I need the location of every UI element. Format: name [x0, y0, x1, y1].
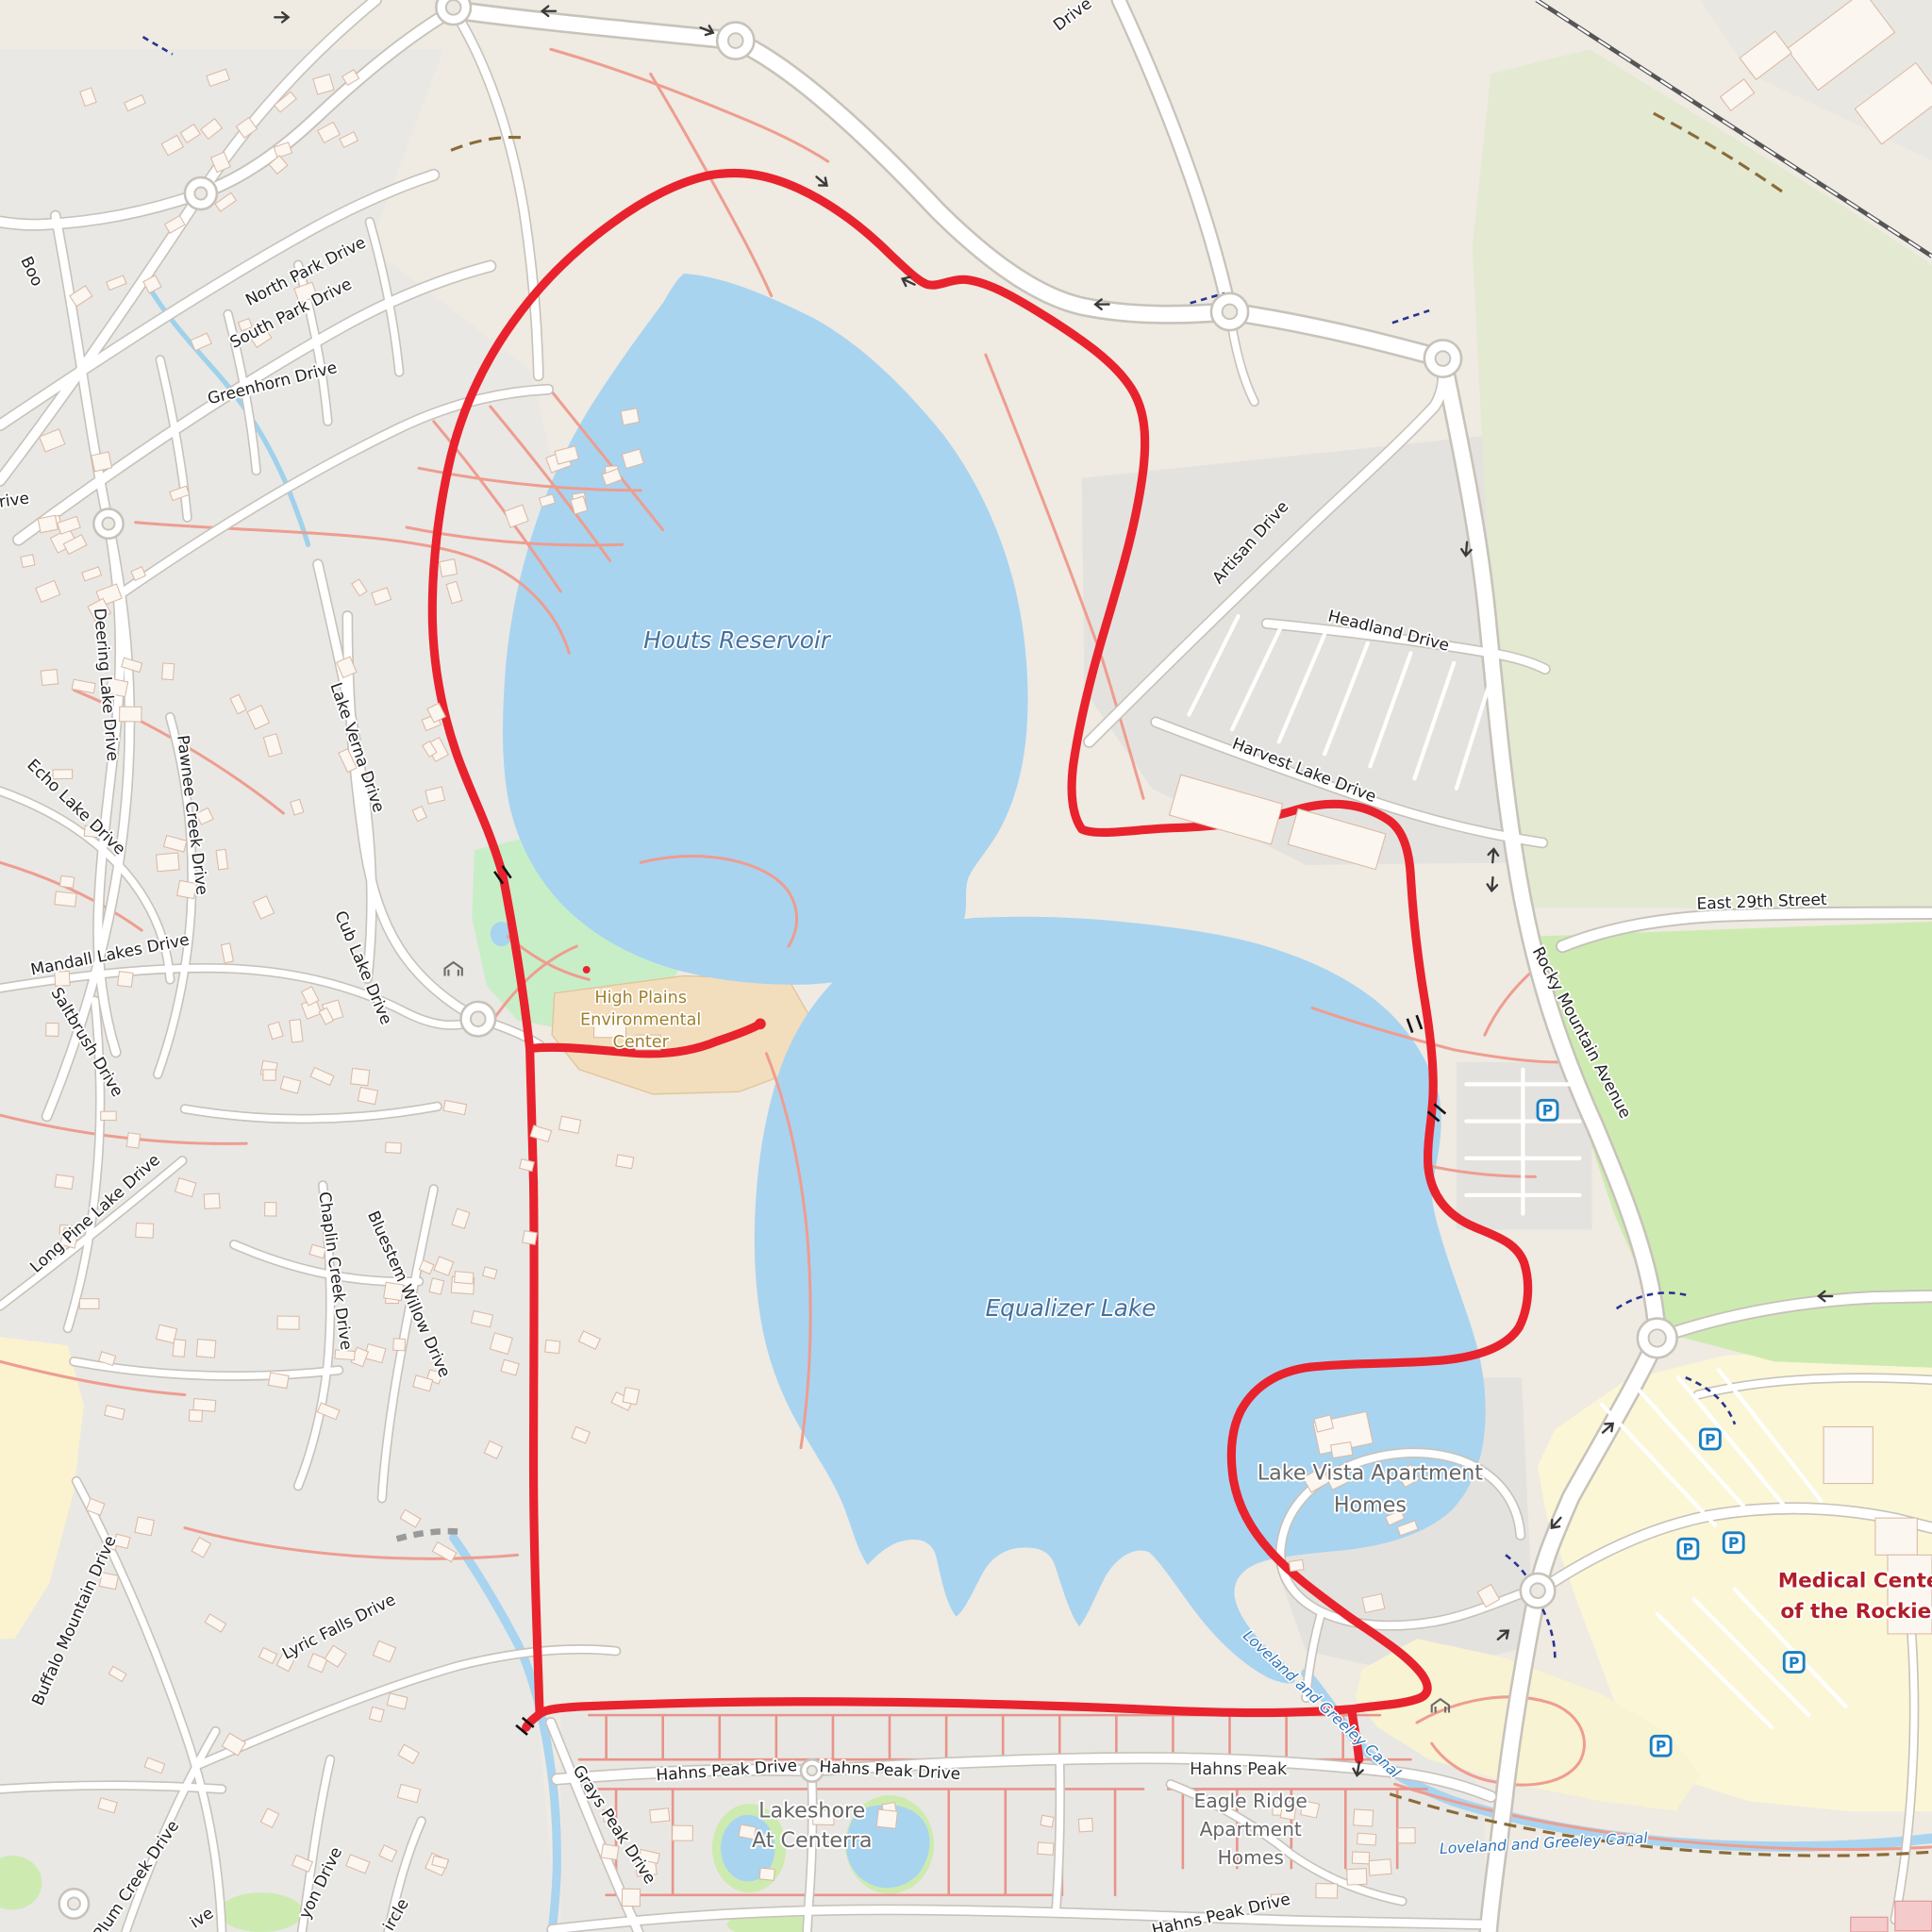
parking-letter: P [1728, 1534, 1739, 1552]
roundabout [1638, 1319, 1677, 1358]
building [92, 452, 112, 472]
building [601, 1844, 619, 1860]
building [162, 663, 175, 680]
building [189, 1410, 202, 1422]
parking-icon: P [1678, 1539, 1698, 1558]
building [1354, 1809, 1374, 1826]
parking-icon: P [1538, 1100, 1557, 1120]
building [59, 875, 74, 888]
place-label-lakeshore-1: Lakeshore [758, 1799, 865, 1824]
roundabout [59, 1889, 89, 1918]
building [55, 891, 76, 907]
building [673, 1825, 693, 1840]
parking-letter: P [1683, 1541, 1693, 1558]
building [622, 1889, 640, 1907]
building [650, 1808, 670, 1823]
building [21, 555, 35, 568]
building [386, 1142, 402, 1153]
building [1398, 1828, 1415, 1843]
building-pink [1895, 1901, 1932, 1930]
building [126, 1133, 140, 1148]
building [1352, 1852, 1369, 1864]
building [268, 1373, 289, 1389]
roundabout [93, 508, 123, 538]
building [1357, 1833, 1376, 1845]
place-label-hahns-peak: Hahns Peak [1190, 1760, 1288, 1779]
building-pink [1851, 1917, 1888, 1932]
roundabout [1211, 293, 1248, 330]
building [118, 972, 134, 988]
building [545, 1340, 560, 1353]
map-canvas[interactable]: PPPPPP North Park Drive South Park Drive… [0, 0, 1932, 1932]
place-label-high-plains-1: High Plains [594, 989, 687, 1008]
building [157, 853, 180, 872]
building [351, 1068, 370, 1085]
roundabout [185, 177, 217, 209]
building [369, 1707, 384, 1722]
place-label-medical-2: of the Rockies [1780, 1600, 1932, 1624]
parking-icon: P [1651, 1736, 1671, 1756]
building [1369, 1859, 1391, 1875]
roundabout [1424, 340, 1461, 376]
roundabout [1521, 1574, 1556, 1608]
poi-dot-marker [583, 966, 591, 974]
building [136, 1223, 154, 1238]
building [79, 1299, 98, 1309]
route-endpoint-marker [755, 1019, 766, 1030]
place-label-lake-vista-1: Lake Vista Apartment [1257, 1461, 1483, 1486]
place-label-eagle-ridge-1: Eagle Ridge [1194, 1790, 1307, 1812]
building [135, 1517, 154, 1536]
parking-icon: P [1724, 1533, 1743, 1553]
building [455, 1272, 474, 1284]
building [277, 1316, 299, 1329]
grass-bottom-left [219, 1892, 303, 1932]
building [55, 1174, 74, 1189]
building [1824, 1426, 1873, 1483]
building [196, 1340, 216, 1358]
building [1289, 1559, 1304, 1571]
parking-letter: P [1542, 1102, 1553, 1120]
building [621, 408, 640, 425]
place-label-eagle-ridge-3: Homes [1218, 1846, 1284, 1869]
roundabout [436, 0, 471, 25]
parking-icon: P [1784, 1653, 1804, 1673]
place-label-eagle-ridge-2: Apartment [1200, 1818, 1302, 1840]
building [358, 1087, 377, 1104]
building [290, 1020, 303, 1042]
building [1316, 1884, 1338, 1898]
building [101, 1111, 116, 1120]
building [1041, 1815, 1054, 1827]
building [46, 1023, 59, 1036]
building [120, 707, 142, 722]
building [265, 1203, 276, 1217]
parking-letter: P [1656, 1738, 1666, 1756]
building [393, 1339, 406, 1351]
building [38, 515, 58, 533]
building [1038, 1842, 1054, 1855]
building [440, 559, 458, 577]
parking-letter: P [1789, 1654, 1799, 1672]
building [193, 1399, 216, 1412]
place-label-medical-1: Medical Center [1778, 1569, 1932, 1592]
building [204, 1193, 220, 1208]
building [1875, 1518, 1917, 1555]
building [616, 1155, 634, 1169]
building [41, 669, 58, 685]
building [759, 1868, 774, 1880]
water-label-houts-reservoir: Houts Reservoir [643, 626, 832, 654]
building [173, 1340, 186, 1357]
water-label-equalizer-lake: Equalizer Lake [985, 1294, 1156, 1322]
building [876, 1809, 897, 1828]
building [1078, 1818, 1092, 1832]
building [1347, 1869, 1367, 1885]
building [216, 849, 228, 870]
building [263, 1070, 275, 1080]
building [335, 1350, 355, 1360]
place-label-lake-vista-2: Homes [1334, 1493, 1407, 1518]
building [1331, 1442, 1353, 1458]
place-label-lakeshore-2: At Centerra [752, 1828, 873, 1853]
roundabout [460, 1002, 495, 1037]
place-label-high-plains-2: Environmental [580, 1011, 701, 1030]
place-label-high-plains-3: Center [613, 1033, 670, 1052]
parking-letter: P [1705, 1430, 1715, 1448]
building [523, 1231, 538, 1245]
roundabout [717, 23, 754, 59]
building [623, 1388, 639, 1405]
parking-icon: P [1700, 1429, 1720, 1449]
building [429, 1278, 444, 1294]
